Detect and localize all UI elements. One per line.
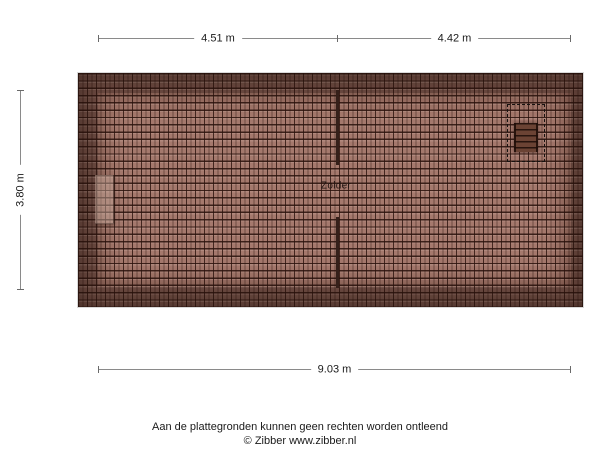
dimension-label-bottom: 9.03 m bbox=[311, 363, 359, 376]
dimension-tick bbox=[570, 366, 571, 373]
dimension-tick bbox=[17, 90, 24, 91]
dimension-tick bbox=[570, 35, 571, 42]
dimension-line-top-right: 4.42 m bbox=[338, 38, 571, 39]
attic-floorplan: Zolder bbox=[78, 73, 583, 307]
interior-wall-lower bbox=[336, 217, 339, 288]
dimension-line-top-left: 4.51 m bbox=[98, 38, 338, 39]
loft-ladder-icon bbox=[514, 123, 538, 152]
footer: Aan de plattegronden kunnen geen rechten… bbox=[0, 421, 600, 448]
chimney-icon bbox=[95, 175, 114, 224]
footer-disclaimer: Aan de plattegronden kunnen geen rechten… bbox=[0, 421, 600, 435]
dimension-tick bbox=[98, 35, 99, 42]
dimension-label-top-right: 4.42 m bbox=[431, 32, 479, 45]
roof-hatch-dashed-outline bbox=[507, 104, 545, 162]
floorplan-canvas: 4.51 m 4.42 m 3.80 m 9.03 m Zolder Aan d… bbox=[0, 0, 600, 450]
interior-wall-upper bbox=[336, 90, 339, 165]
dimension-label-top-left: 4.51 m bbox=[194, 32, 242, 45]
dimension-line-left: 3.80 m bbox=[20, 90, 21, 290]
dimension-tick bbox=[17, 289, 24, 290]
dimension-label-left: 3.80 m bbox=[14, 165, 27, 215]
footer-credit: © Zibber www.zibber.nl bbox=[0, 435, 600, 449]
dimension-line-bottom: 9.03 m bbox=[98, 369, 571, 370]
room-label: Zolder bbox=[321, 181, 351, 192]
dimension-tick bbox=[98, 366, 99, 373]
